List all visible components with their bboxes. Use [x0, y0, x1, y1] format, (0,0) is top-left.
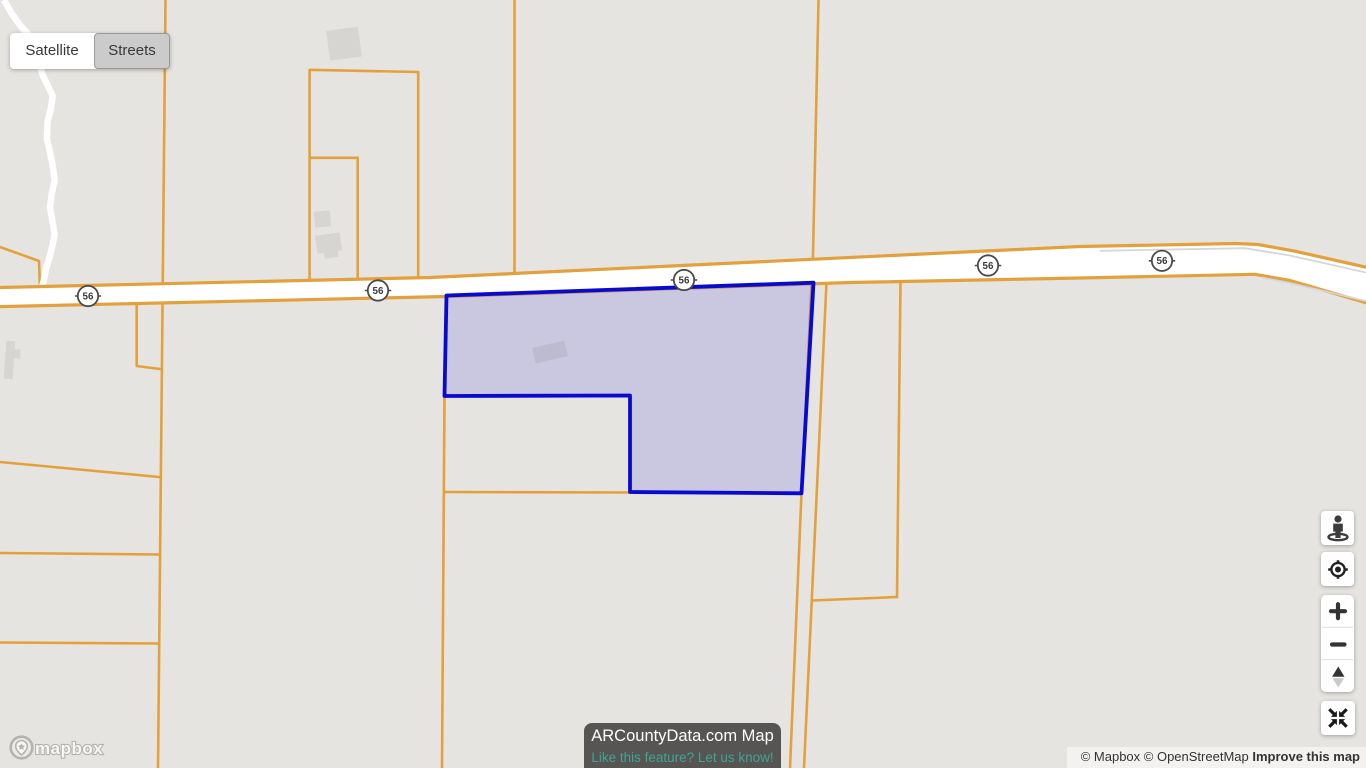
svg-text:56: 56 [83, 291, 94, 302]
svg-text:56: 56 [983, 261, 994, 272]
svg-text:56: 56 [679, 275, 690, 286]
svg-text:56: 56 [1157, 256, 1168, 267]
svg-text:56: 56 [373, 286, 384, 297]
svg-text:mapbox: mapbox [35, 739, 103, 758]
